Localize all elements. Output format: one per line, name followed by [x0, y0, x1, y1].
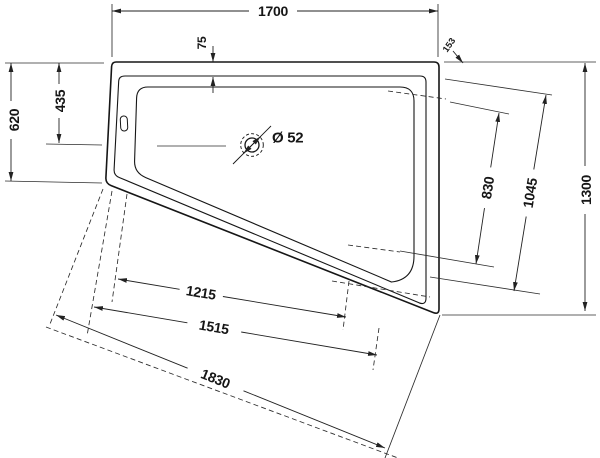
- tub-basin-edge: [135, 87, 414, 282]
- dimension-1215: 1215: [118, 279, 346, 317]
- panel-ext-1515-right: [373, 328, 379, 370]
- ext-1045-top: [445, 79, 552, 95]
- dim-label-1045: 1045: [520, 176, 541, 209]
- bathtub-outline: [106, 62, 439, 313]
- technical-drawing-page: 1700 75 620 435 1300: [0, 0, 600, 458]
- dim-label-75: 75: [195, 36, 209, 49]
- dimension-435: 435: [52, 63, 68, 143]
- dimension-1700: 1700: [112, 3, 438, 19]
- ext-830-top: [450, 102, 509, 114]
- dim-label-1515: 1515: [198, 317, 231, 338]
- dimension-830: 830: [476, 113, 499, 264]
- panel-fold-mid-right: [348, 245, 400, 252]
- dim-label-1700: 1700: [258, 3, 288, 19]
- panel-ext-1215-right: [343, 281, 349, 330]
- dim-label-620: 620: [6, 108, 22, 131]
- dimension-153: 153: [441, 36, 463, 63]
- bathtub-dimension-drawing: 1700 75 620 435 1300: [0, 0, 600, 458]
- drain-symbol: [233, 126, 271, 164]
- panel-left-edge-1830: [50, 189, 103, 324]
- dimension-75: 75: [195, 36, 213, 93]
- ext-435-bottom: [46, 144, 102, 145]
- ext-1830-right-panel-edge: [385, 315, 440, 458]
- dim-label-1300: 1300: [578, 175, 594, 205]
- ext-620-bottom: [5, 181, 102, 183]
- panel-fold-top-right: [388, 91, 446, 99]
- dimension-1300: 1300: [578, 63, 594, 311]
- extension-lines: [5, 4, 596, 458]
- panel-left-edge-1515: [87, 191, 112, 336]
- dim-label-1830: 1830: [199, 365, 233, 391]
- panel-fold-lines: [46, 91, 446, 458]
- dimension-lines: 1700 75 620 435 1300: [6, 3, 594, 448]
- dim-label-153: 153: [441, 36, 458, 54]
- panel-left-edge-1215: [112, 194, 127, 302]
- panel-fold-low-right: [332, 281, 430, 297]
- overflow-hole: [120, 116, 128, 131]
- dimension-1045: 1045: [514, 95, 546, 291]
- dim-label-435: 435: [52, 89, 68, 112]
- panel-bottom-edge: [46, 327, 398, 458]
- tub-outer-rim: [106, 62, 439, 313]
- dim-label-1215: 1215: [185, 282, 218, 303]
- dimension-620: 620: [6, 63, 22, 181]
- tub-rim-inner-edge: [114, 76, 426, 304]
- drain-diameter-label: Ø 52: [272, 130, 303, 147]
- dim-label-830: 830: [478, 175, 497, 200]
- ext-1045-bottom: [430, 277, 540, 294]
